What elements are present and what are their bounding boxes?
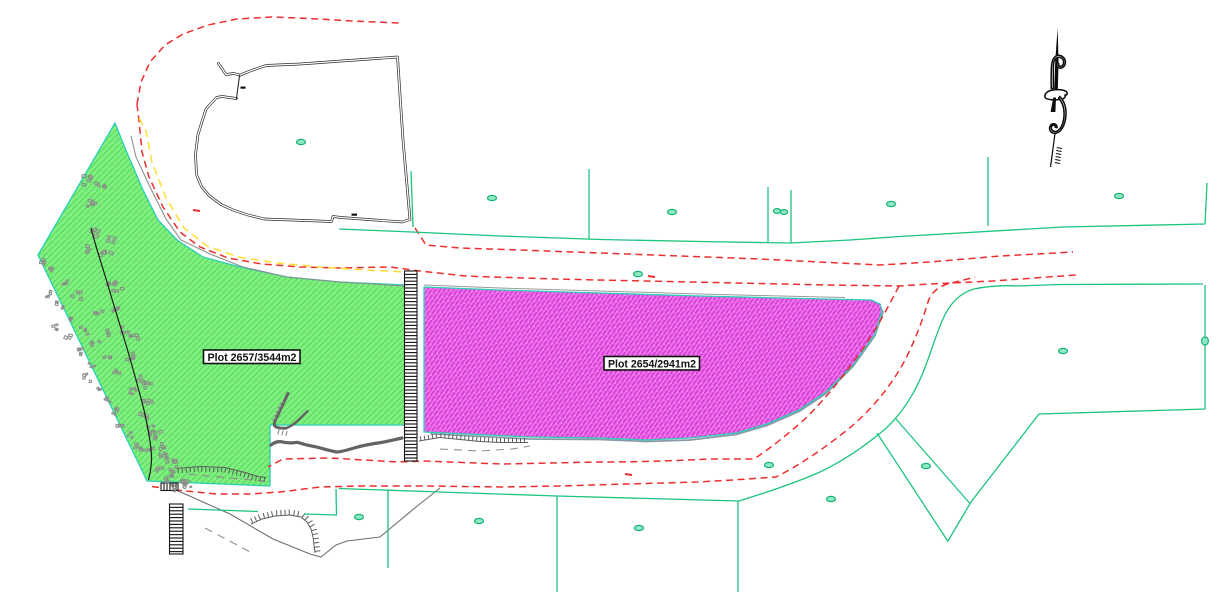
- svg-text:Plot 2657/3544m2: Plot 2657/3544m2: [208, 352, 297, 364]
- svg-text:Plot 2654/2941m2: Plot 2654/2941m2: [608, 358, 696, 370]
